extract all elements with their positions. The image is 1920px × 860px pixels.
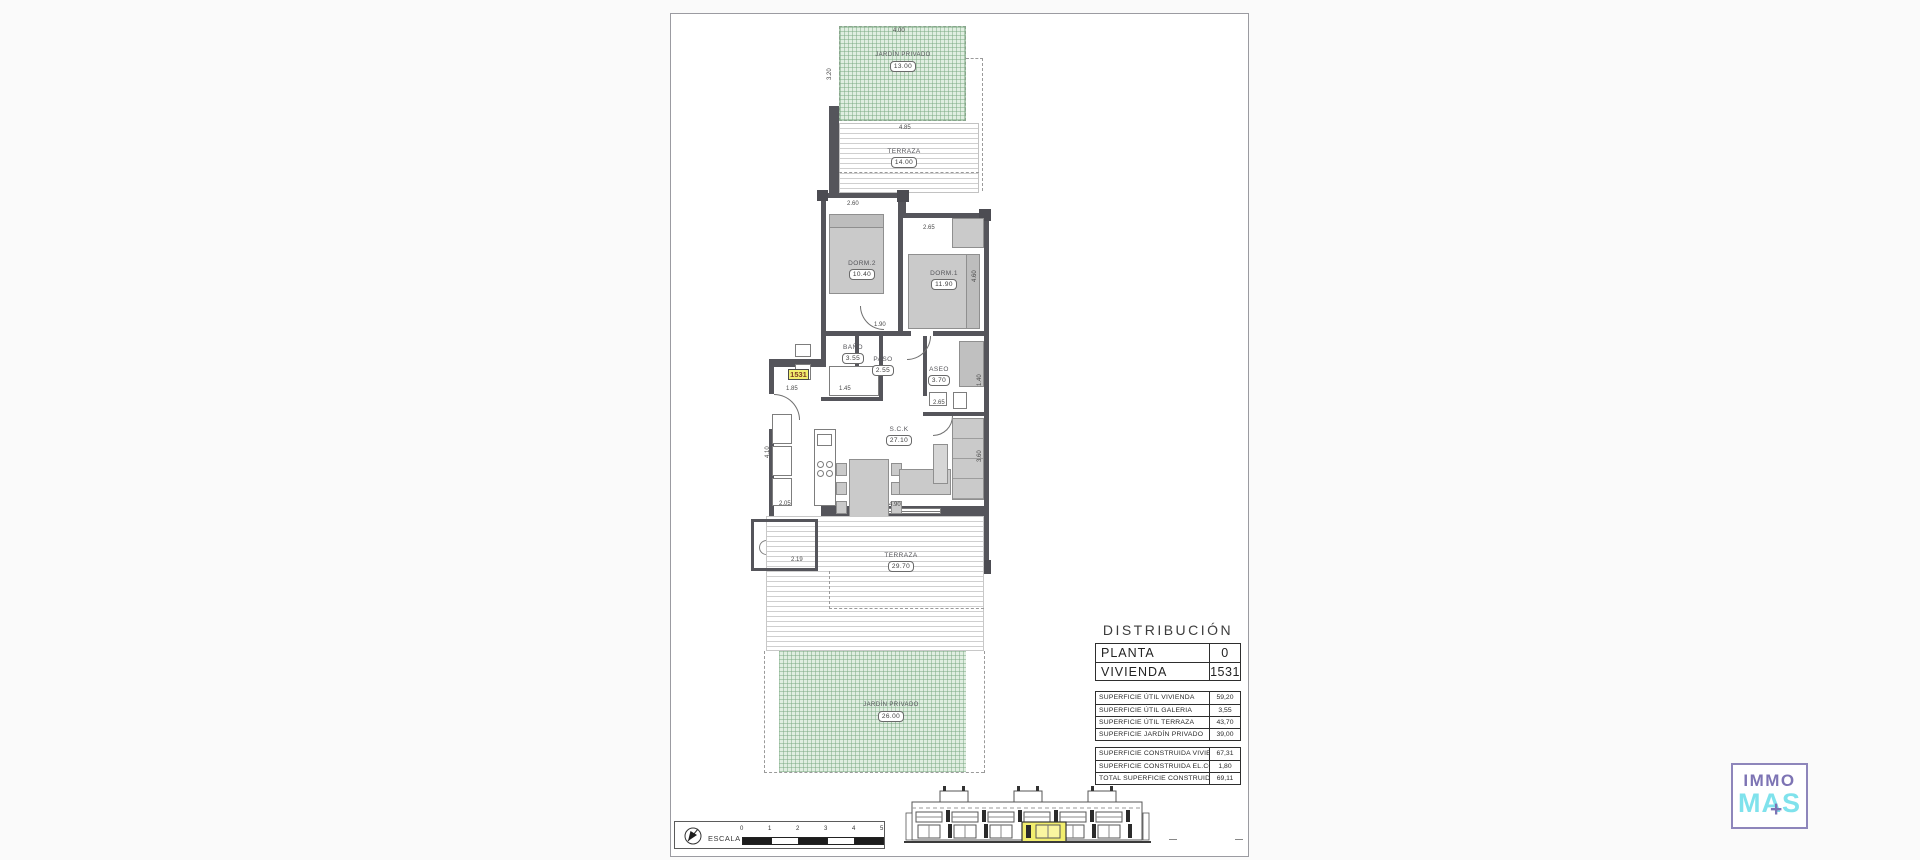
garden-bottom-boundary [984, 651, 985, 773]
galeria-outline [751, 519, 818, 571]
dim-label: 1.85 [786, 386, 798, 392]
table-row: TOTAL SUPERFICIE CONSTRUIDA 69,11 [1096, 772, 1240, 784]
wall [821, 397, 883, 401]
scale-bar: ESCALA : 0 1 2 3 4 5 [674, 821, 885, 849]
wall [769, 367, 774, 394]
brand-logo: IMMO MAS + [1731, 763, 1808, 829]
dim-label: 4.00 [893, 28, 905, 34]
area-badge: 3.70 [928, 375, 950, 386]
furniture-coffee-table [933, 444, 948, 484]
distribution-title: DISTRIBUCIÓN [1095, 622, 1241, 638]
dim-label: 4.90 [889, 502, 901, 508]
table-row: SUPERFICIE ÚTIL TERRAZA 43,70 [1096, 716, 1240, 728]
table-row: PLANTA 0 [1096, 644, 1240, 662]
scale-segment [855, 838, 883, 844]
area-badge: 11.90 [931, 279, 957, 290]
furniture-pillow-dorm1 [966, 254, 980, 329]
ground-line-dash [1235, 839, 1243, 840]
area-badge: 29.70 [888, 561, 914, 572]
area-badge: 14.00 [891, 157, 917, 168]
garden-top [839, 26, 966, 121]
furniture-washbasin [795, 344, 811, 357]
wall [821, 193, 826, 364]
furniture-cabinet-column [772, 414, 792, 444]
logo-plus-icon: + [1770, 798, 1782, 822]
furniture-hob-burner [826, 461, 833, 468]
furniture-pillow-dorm2 [829, 214, 884, 228]
room-label-terraza-top: TERRAZA 14.00 [876, 148, 932, 168]
terrace-top-dashed [839, 172, 979, 173]
dim-label: 2.65 [933, 400, 945, 406]
door-arc-aseo [933, 416, 953, 436]
garden-top-ext-line [966, 58, 983, 59]
scale-segments [742, 837, 884, 845]
room-label-jardin-top: JARDÍN PRIVADO 13.00 [875, 52, 931, 72]
distribution-util-table: SUPERFICIE ÚTIL VIVIENDA 59,20 SUPERFICI… [1095, 691, 1241, 741]
door-arc-dorm1 [907, 336, 931, 360]
room-label-terraza-main: TERRAZA 29.70 [873, 552, 929, 572]
dim-label: 1.40 [977, 374, 983, 386]
area-badge: 2.55 [872, 365, 894, 376]
furniture-cabinet-column [772, 446, 792, 476]
furniture-hob-burner [817, 470, 824, 477]
terrace-main-dashed [829, 571, 830, 609]
table-row: SUPERFICIE ÚTIL GALERIA 3,55 [1096, 704, 1240, 716]
garden-top-ext-line [982, 58, 983, 191]
scale-segment [799, 838, 827, 844]
scale-tick: 5 [880, 826, 883, 832]
plan-sheet: JARDÍN PRIVADO 13.00 TERRAZA 14.00 [670, 13, 1249, 857]
furniture-hob-burner [826, 470, 833, 477]
room-label-dorm2: DORM.2 10.40 [837, 260, 887, 280]
table-row: SUPERFICIE ÚTIL VIVIENDA 59,20 [1096, 692, 1240, 704]
furniture-dining-table [849, 459, 889, 519]
room-label-aseo: ASEO 3.70 [921, 366, 957, 386]
table-row: SUPERFICIE CONSTRUIDA VIVIENDA 67,31 [1096, 748, 1240, 760]
wall [821, 193, 906, 198]
furniture-wardrobe-dorm1 [952, 218, 984, 248]
page-background: JARDÍN PRIVADO 13.00 TERRAZA 14.00 [0, 0, 1920, 860]
scale-segment [771, 838, 799, 844]
furniture-aseo-wc [953, 392, 967, 409]
distribution-main-table: PLANTA 0 VIVIENDA 1531 [1095, 643, 1241, 681]
wall [898, 198, 903, 331]
roof-towers [940, 786, 1116, 802]
pillar [817, 190, 828, 201]
area-badge: 10.40 [849, 269, 875, 280]
scale-tick: 2 [796, 826, 799, 832]
dim-label: 2.05 [779, 501, 791, 507]
area-badge: 26.00 [878, 711, 904, 722]
area-badge: 3.55 [842, 353, 864, 364]
dim-label: 1.90 [874, 322, 886, 328]
wall [933, 331, 989, 336]
dim-label: 4.85 [899, 125, 911, 131]
pillar [897, 190, 909, 202]
scale-segment [827, 838, 855, 844]
area-badge: 13.00 [890, 61, 916, 72]
dim-label: 3.20 [827, 68, 833, 80]
distribution-built-table: SUPERFICIE CONSTRUIDA VIVIENDA 67,31 SUP… [1095, 747, 1241, 785]
building-elevation [904, 786, 1151, 848]
garden-bottom-boundary [764, 651, 765, 773]
furniture-hob-burner [817, 461, 824, 468]
highlighted-unit [1022, 822, 1066, 842]
dim-label: 2.19 [791, 557, 803, 563]
table-row: VIVIENDA 1531 [1096, 662, 1240, 680]
dim-label: 1.45 [839, 386, 851, 392]
room-label-dorm1: DORM.1 11.90 [916, 270, 972, 290]
wall [821, 331, 911, 336]
scale-tick: 1 [768, 826, 771, 832]
furniture-chair [836, 482, 847, 495]
unit-badge: 1531 [788, 369, 809, 380]
room-label-paso: PASO 2.55 [865, 356, 901, 376]
dim-label: 2.65 [923, 225, 935, 231]
scale-label: ESCALA : [708, 834, 745, 843]
room-label-jardin-bottom: JARDÍN PRIVADO 26.00 [863, 702, 919, 722]
wall [829, 106, 839, 194]
table-row: SUPERFICIE CONSTRUIDA EL.COMUNES 1,80 [1096, 760, 1240, 772]
dim-label: 4.60 [972, 270, 978, 282]
table-row: SUPERFICIE JARDÍN PRIVADO 39,00 [1096, 728, 1240, 740]
area-badge: 27.10 [886, 435, 912, 446]
north-arrow-icon [683, 826, 703, 846]
furniture-kitchen-sink [817, 434, 832, 446]
scale-segment [743, 838, 771, 844]
scale-tick: 0 [740, 826, 743, 832]
ground-line-dash [1169, 839, 1177, 840]
scale-tick: 4 [852, 826, 855, 832]
furniture-chair [836, 501, 847, 514]
terrace-main-dashed [829, 608, 984, 609]
scale-tick: 3 [824, 826, 827, 832]
furniture-chair [836, 463, 847, 476]
dim-label: 3.60 [977, 450, 983, 462]
dim-label: 2.60 [847, 201, 859, 207]
garden-bottom-boundary [764, 772, 984, 773]
room-label-sck: S.C.K 27.10 [871, 426, 927, 446]
dim-label: 4.10 [765, 446, 771, 458]
